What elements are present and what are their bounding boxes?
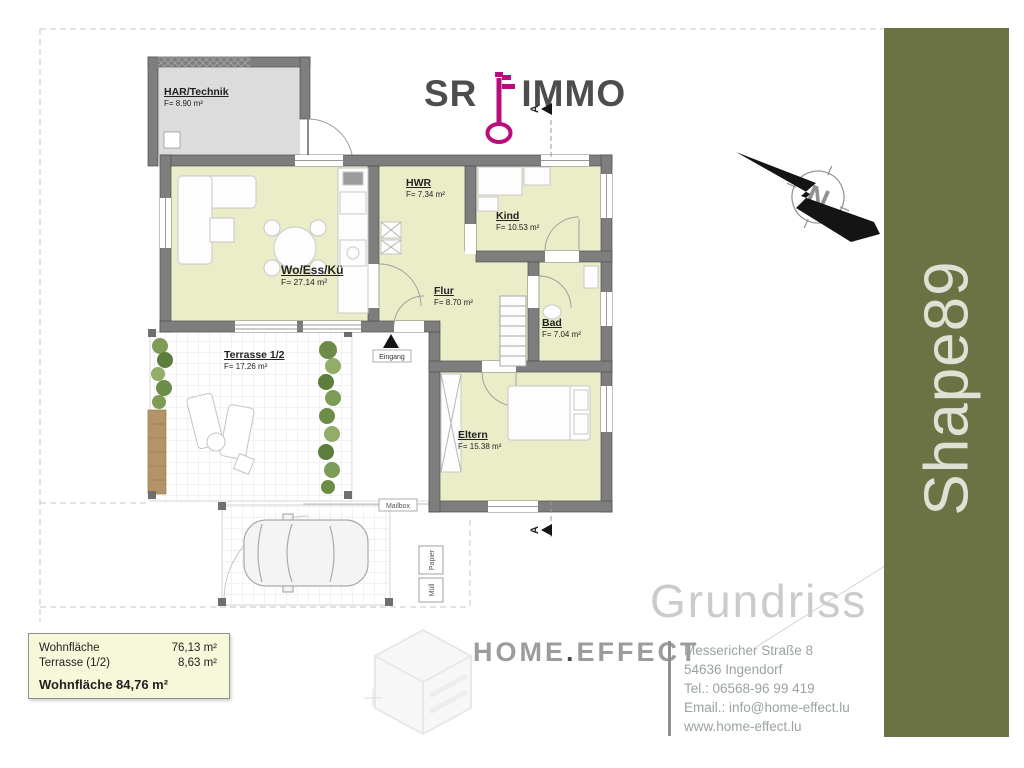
room-label-flur: Flur F= 8.70 m² [434, 285, 473, 307]
annex-har-technik [148, 57, 353, 166]
room-label-hwr: HWR F= 7.34 m² [406, 177, 445, 199]
room-label-eltern: Eltern F= 15.38 m² [458, 429, 501, 451]
contact-email: Email.: info@home-effect.lu [684, 698, 850, 717]
logo-text-sr: SR [424, 70, 477, 118]
section-marker-top: A [531, 103, 552, 115]
section-arrow-icon [541, 103, 552, 115]
svg-text:Mailbox: Mailbox [386, 503, 411, 510]
contact-divider [668, 641, 671, 736]
floorplan-page: Mailbox Papier Müll [0, 0, 1024, 768]
drawing-title: Grundriss [650, 574, 867, 628]
contact-city: 54636 Ingendorf [684, 660, 850, 679]
summary-row: Wohnfläche 76,13 m² [39, 641, 217, 656]
paper-bin-box: Papier [419, 546, 443, 574]
compass: N [736, 152, 880, 242]
room-label-terrasse: Terrasse 1/2 F= 17.26 m² [224, 349, 285, 371]
key-icon [479, 70, 519, 146]
room-label-bad: Bad F= 7.04 m² [542, 317, 581, 339]
home-effect-watermark [364, 630, 471, 734]
waste-bin-box: Müll [419, 578, 443, 602]
sr-immo-logo: SR IMMO [424, 70, 626, 146]
sidebar-vertical-label: Shape89 [911, 260, 982, 515]
contact-block: Messericher Straße 8 54636 Ingendorf Tel… [684, 641, 850, 736]
room-label-kind: Kind F= 10.53 m² [496, 210, 539, 232]
summary-row: Terrasse (1/2) 8,63 m² [39, 656, 217, 671]
shape-sidebar: Shape89 [884, 28, 1009, 737]
mailbox-box: Mailbox [379, 499, 417, 511]
contact-phone: Tel.: 06568-96 99 419 [684, 679, 850, 698]
home-effect-brand: HOME.EFFECT [473, 637, 700, 668]
section-marker-bottom: A [531, 524, 552, 536]
room-label-wo-ess-kue: Wo/Ess/Kü F= 27.14 m² [281, 263, 343, 288]
section-arrow-icon [541, 524, 552, 536]
svg-text:Müll: Müll [429, 583, 436, 596]
driveway [218, 502, 393, 606]
svg-text:Eingang: Eingang [379, 354, 405, 361]
summary-total: Wohnfläche 84,76 m² [39, 677, 217, 692]
contact-website: www.home-effect.lu [684, 717, 850, 736]
area-summary-box: Wohnfläche 76,13 m² Terrasse (1/2) 8,63 … [28, 633, 230, 699]
wood-deck [148, 410, 166, 494]
room-label-har-technik: HAR/Technik F= 8.90 m² [164, 86, 229, 108]
brand-dot: . [566, 637, 577, 667]
svg-text:Papier: Papier [429, 549, 436, 570]
contact-street: Messericher Straße 8 [684, 641, 850, 660]
car [244, 514, 368, 592]
